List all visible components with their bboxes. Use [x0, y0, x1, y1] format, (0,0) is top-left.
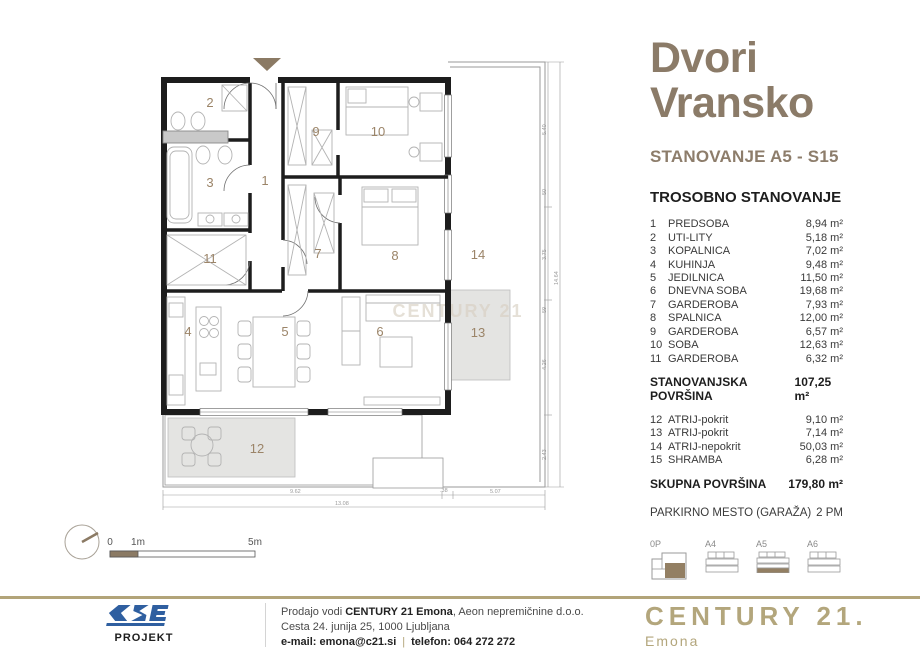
room-label-8: 8 — [391, 248, 398, 263]
footer-line1: Prodajo vodi CENTURY 21 Emona, Aeon nepr… — [281, 605, 584, 620]
window-midlines — [200, 95, 448, 412]
room-row: 14ATRIJ-nepokrit50,03 m² — [650, 441, 843, 454]
building-a4-icon — [705, 551, 739, 573]
bed-8-icon — [362, 187, 418, 245]
room-label-6: 6 — [376, 324, 383, 339]
room-row: 6DNEVNA SOBA19,68 m² — [650, 285, 843, 298]
mini-plan-a5[interactable]: A5 — [756, 539, 790, 581]
site-plan-icon — [650, 551, 688, 581]
room-label-1: 1 — [261, 173, 268, 188]
svg-text:.38: .38 — [440, 488, 448, 494]
room-row: 11GARDEROBA6,32 m² — [650, 353, 843, 366]
room-list: 1PREDSOBA8,94 m² 2UTI-LITY5,18 m² 3KOPAL… — [650, 218, 843, 365]
svg-text:50: 50 — [542, 189, 548, 195]
mini-plan-0p[interactable]: 0P — [650, 539, 688, 581]
info-panel: Dvori Vransko STANOVANJE A5 - S15 TROSOB… — [650, 36, 865, 581]
room-row: 13ATRIJ-pokrit7,14 m² — [650, 427, 843, 440]
room-label-9: 9 — [312, 124, 319, 139]
cse-logo-icon: PROJEKT — [105, 603, 183, 647]
svg-text:3.75: 3.75 — [542, 249, 548, 260]
room-label-2: 2 — [206, 95, 213, 110]
footer-divider-line — [0, 596, 920, 599]
room-label-4: 4 — [184, 324, 191, 339]
room-label-5: 5 — [281, 324, 288, 339]
bed-10-icon — [346, 87, 442, 161]
watermark: CENTURY 21 — [392, 301, 523, 321]
floor-plan: CENTURY 21 — [50, 45, 570, 565]
building-a6-icon — [807, 551, 841, 573]
apartment-id: STANOVANJE A5 - S15 — [650, 147, 865, 167]
room-label-3: 3 — [206, 175, 213, 190]
project-title: Dvori Vransko — [650, 36, 865, 125]
room-row: 9GARDEROBA6,57 m² — [650, 326, 843, 339]
washer-counter-icon — [163, 131, 228, 143]
century21-wordmark: CENTURY 21. — [645, 601, 868, 632]
svg-text:5.07: 5.07 — [490, 489, 501, 495]
kitchen-icon — [167, 297, 221, 405]
cse-projekt-logo: PROJEKT — [105, 603, 183, 652]
apartment-type: TROSOBNO STANOVANJE — [650, 189, 865, 206]
svg-text:2.43: 2.43 — [542, 449, 548, 460]
footer-address: Cesta 24. junija 25, 1000 Ljubljana — [281, 620, 584, 635]
parking-row: PARKIRNO MESTO (GARAŽA) 2 PM — [650, 507, 843, 519]
room-row: 5JEDILNICA11,50 m² — [650, 272, 843, 285]
living-area-total: STANOVANJSKA POVRŠINA 107,25 m² — [650, 375, 843, 403]
svg-text:14.64: 14.64 — [554, 271, 560, 285]
svg-text:13.08: 13.08 — [335, 501, 349, 507]
room-row: 1PREDSOBA8,94 m² — [650, 218, 843, 231]
floor-plan-svg: CENTURY 21 — [50, 45, 570, 565]
svg-text:4.26: 4.26 — [542, 359, 548, 370]
room-row: 12ATRIJ-pokrit9,10 m² — [650, 414, 843, 427]
svg-text:5.40: 5.40 — [542, 124, 548, 135]
mini-plan-a4[interactable]: A4 — [705, 539, 739, 581]
phone-link[interactable]: 064 272 272 — [454, 636, 515, 648]
svg-text:PROJEKT: PROJEKT — [115, 632, 174, 644]
room-row: 15SHRAMBA6,28 m² — [650, 454, 843, 467]
svg-text:1m: 1m — [131, 537, 145, 548]
room-label-12: 12 — [250, 441, 264, 456]
compass-icon — [65, 525, 99, 559]
room-label-10: 10 — [371, 124, 385, 139]
shramba-box — [373, 458, 443, 488]
footer-vertical-divider — [265, 603, 266, 647]
wardrobe-9-icon — [288, 87, 332, 165]
footer-line3: e-mail: emona@c21.si|telefon: 064 272 27… — [281, 635, 584, 650]
email-link[interactable]: emona@c21.si — [320, 636, 397, 648]
svg-text:5m: 5m — [248, 537, 262, 548]
gross-area-total: SKUPNA POVRŠINA 179,80 m² — [650, 477, 843, 491]
room-row: 4KUHINJA9,48 m² — [650, 259, 843, 272]
room-row: 2UTI-LITY5,18 m² — [650, 232, 843, 245]
room-label-13: 13 — [471, 325, 485, 340]
mini-plan-selector: 0P A4 A5 — [650, 539, 860, 581]
windows — [200, 95, 452, 416]
room-row: 7GARDEROBA7,93 m² — [650, 299, 843, 312]
project-title-line2: Vransko — [650, 81, 865, 126]
svg-text:9.62: 9.62 — [290, 489, 301, 495]
room-label-7: 7 — [314, 246, 321, 261]
entry-arrow-icon — [253, 58, 281, 71]
room-label-11: 11 — [203, 251, 217, 266]
room-row: 3KOPALNICA7,02 m² — [650, 245, 843, 258]
svg-text:59: 59 — [542, 307, 548, 313]
century21-logo: CENTURY 21. Emona — [645, 601, 868, 649]
scale-bar: 0 1m 5m — [107, 537, 262, 557]
dining-table-icon — [238, 317, 310, 387]
mini-plan-a6[interactable]: A6 — [807, 539, 841, 581]
room-row: 8SPALNICA12,00 m² — [650, 312, 843, 325]
project-title-line1: Dvori — [650, 36, 865, 81]
century21-office: Emona — [645, 633, 868, 649]
svg-text:0: 0 — [107, 537, 113, 548]
footer-contact-block: Prodajo vodi CENTURY 21 Emona, Aeon nepr… — [281, 605, 584, 650]
building-a5-icon — [756, 551, 790, 573]
extras-list: 12ATRIJ-pokrit9,10 m² 13ATRIJ-pokrit7,14… — [650, 414, 843, 468]
room-row: 10SOBA12,63 m² — [650, 339, 843, 352]
wardrobe-7-icon — [288, 185, 334, 275]
room-label-14: 14 — [471, 247, 485, 262]
